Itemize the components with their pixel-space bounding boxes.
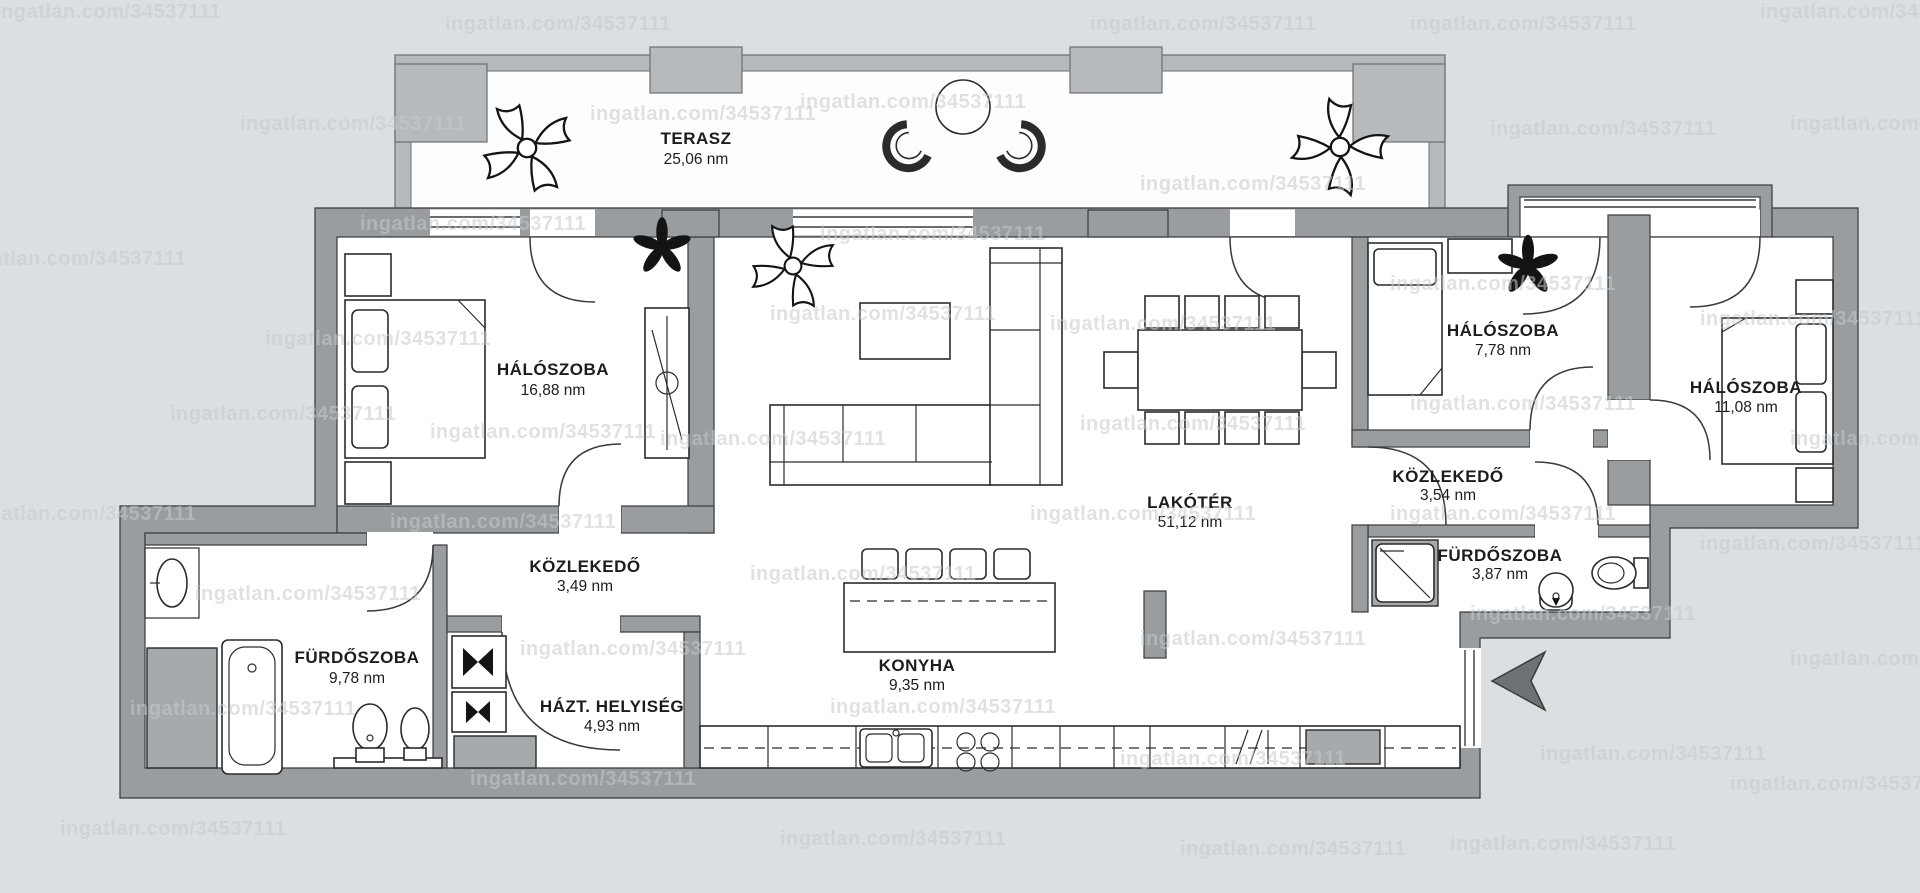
bidet: [401, 708, 429, 760]
washbasin: [157, 559, 187, 607]
watermark-text: ingatlan.com/34537111: [1470, 603, 1696, 625]
watermark-text: ingatlan.com/34537111: [1390, 273, 1616, 295]
watermark-text: ingatlan.com/34537111: [520, 638, 746, 660]
dryer: [452, 692, 506, 732]
watermark-text: ingatlan.com/34537111: [0, 248, 186, 270]
watermark-text: ingatlan.com/34537111: [1080, 413, 1306, 435]
watermark-text: ingatlan.com/34537111: [800, 91, 1026, 113]
room-area-haloszoba-3: 11,08 nm: [1714, 399, 1777, 416]
watermark-text: ingatlan.com/34537111: [265, 328, 491, 350]
watermark-text: ingatlan.com/34537111: [1760, 1, 1920, 23]
entrance-arrow: [1492, 652, 1545, 710]
watermark-text: ingatlan.com/34537111: [0, 1, 221, 23]
room-label-terasz: TERASZ: [661, 129, 732, 148]
watermark-text: ingatlan.com/34537111: [1540, 743, 1766, 765]
watermark-text: ingatlan.com/34537111: [1700, 533, 1920, 555]
watermark-text: ingatlan.com/34537111: [1090, 13, 1316, 35]
nightstand: [345, 254, 391, 296]
watermark-text: ingatlan.com/34537111: [445, 13, 671, 35]
kitchen-sink: [860, 729, 932, 767]
room-area-kozlekedo-2: 3,54 nm: [1420, 487, 1476, 504]
watermark-text: ingatlan.com/34537111: [820, 223, 1046, 245]
terrace-pillar: [1353, 64, 1445, 142]
watermark-text: ingatlan.com/34537111: [1700, 308, 1920, 330]
watermark-text: ingatlan.com/34537111: [360, 213, 586, 235]
watermark-text: ingatlan.com/34537111: [195, 583, 421, 605]
terrace-pillar: [650, 47, 742, 93]
watermark-text: ingatlan.com/34537111: [130, 698, 356, 720]
watermark-text: ingatlan.com/34537111: [1030, 503, 1256, 525]
watermark-text: ingatlan.com/34537111: [1120, 748, 1346, 770]
watermark-text: ingatlan.com/34537111: [780, 828, 1006, 850]
watermark-text: ingatlan.com/34537111: [60, 818, 286, 840]
room-area-haloszoba-2: 7,78 nm: [1475, 342, 1531, 359]
watermark-text: ingatlan.com/34537111: [430, 421, 656, 443]
room-label-haloszoba-2: HÁLÓSZOBA: [1447, 321, 1559, 340]
watermark-text: ingatlan.com/34537111: [1390, 503, 1616, 525]
room-label-hazt: HÁZT. HELYISÉG: [540, 697, 684, 716]
utility-counter: [454, 736, 536, 768]
room-area-furdoszoba-1: 9,78 nm: [329, 670, 385, 687]
watermark-text: ingatlan.com/34537111: [1410, 393, 1636, 415]
entry-door-opening: [1459, 648, 1481, 748]
room-area-furdoszoba-2: 3,87 nm: [1472, 566, 1528, 583]
floor-plan-page: TERASZ 25,06 nm HÁLÓSZOBA 16,88 nm KÖZLE…: [0, 0, 1920, 893]
watermark-text: ingatlan.com/34537111: [770, 303, 996, 325]
room-area-terasz: 25,06 nm: [664, 151, 729, 168]
watermark-text: ingatlan.com/34537111: [1730, 773, 1920, 795]
room-area-konyha: 9,35 nm: [889, 677, 945, 694]
room-label-kozlekedo-2: KÖZLEKEDŐ: [1392, 467, 1503, 486]
room-label-furdoszoba-1: FÜRDŐSZOBA: [295, 648, 420, 667]
watermark-text: ingatlan.com/34537111: [240, 113, 466, 135]
room-label-furdoszoba-2: FÜRDŐSZOBA: [1438, 546, 1563, 565]
watermark-text: ingatlan.com/34537111: [470, 768, 696, 790]
watermark-text: ingatlan.com/34537111: [1790, 648, 1920, 670]
floor-plan: TERASZ 25,06 nm HÁLÓSZOBA 16,88 nm KÖZLE…: [0, 0, 1920, 893]
watermark-text: ingatlan.com/34537111: [1050, 313, 1276, 335]
dining-table: [1138, 330, 1302, 410]
room-area-haloszoba-1: 16,88 nm: [521, 382, 586, 399]
room-label-haloszoba-1: HÁLÓSZOBA: [497, 360, 609, 379]
watermark-text: ingatlan.com/34537111: [1140, 628, 1366, 650]
room-label-konyha: KONYHA: [879, 656, 956, 675]
watermark-text: ingatlan.com/34537111: [1140, 173, 1366, 195]
watermark-text: ingatlan.com/34537111: [750, 563, 976, 585]
watermark-text: ingatlan.com/34537111: [1410, 13, 1636, 35]
watermark-text: ingatlan.com/34537111: [0, 503, 196, 525]
watermark-text: ingatlan.com/34537111: [830, 696, 1056, 718]
room-label-haloszoba-3: HÁLÓSZOBA: [1690, 378, 1802, 397]
terrace-pillar: [1070, 47, 1162, 93]
watermark-text: ingatlan.com/34537111: [1180, 838, 1406, 860]
room-area-kozlekedo-1: 3,49 nm: [557, 578, 613, 595]
watermark-text: ingatlan.com/34537111: [1790, 428, 1920, 450]
toilet: [1592, 557, 1648, 589]
room-label-kozlekedo-1: KÖZLEKEDŐ: [529, 557, 640, 576]
washing-machine: [452, 636, 506, 688]
nightstand: [1796, 468, 1833, 502]
shower: [1372, 540, 1438, 606]
watermark-text: ingatlan.com/34537111: [1790, 113, 1920, 135]
toilet: [353, 704, 387, 762]
watermark-text: ingatlan.com/34537111: [590, 103, 816, 125]
watermark-text: ingatlan.com/34537111: [390, 511, 616, 533]
watermark-text: ingatlan.com/34537111: [170, 403, 396, 425]
watermark-text: ingatlan.com/34537111: [1490, 118, 1716, 140]
room-area-hazt: 4,93 nm: [584, 718, 640, 735]
watermark-text: ingatlan.com/34537111: [660, 428, 886, 450]
watermark-text: ingatlan.com/34537111: [1450, 833, 1676, 855]
nightstand: [345, 462, 391, 504]
